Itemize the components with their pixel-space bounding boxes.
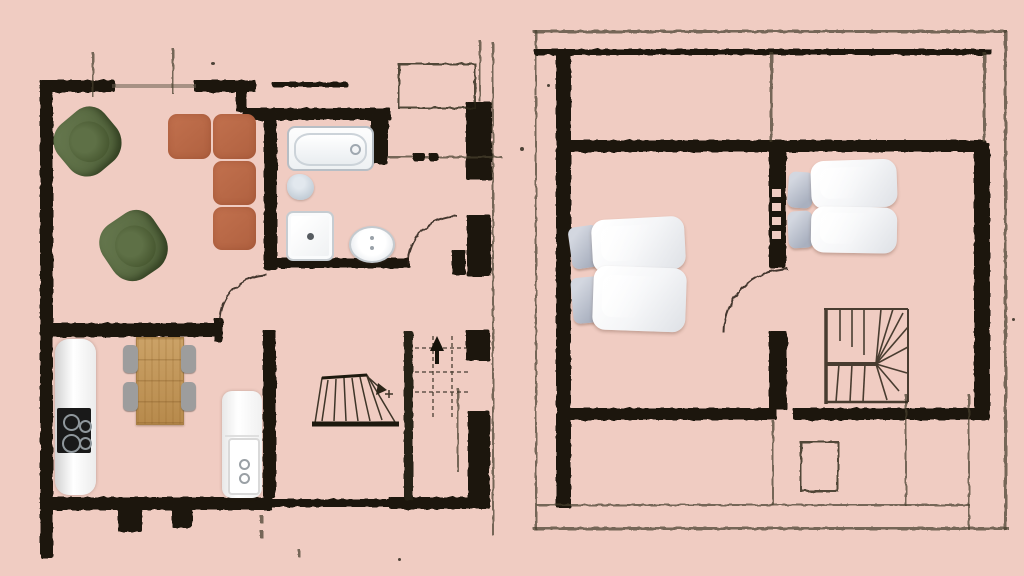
duvet-pillow-1 xyxy=(591,216,687,274)
floor-plan-canvas xyxy=(0,0,1024,576)
duvet-pillow-3 xyxy=(810,159,898,210)
outer-left-a xyxy=(535,30,537,96)
thin-v-a xyxy=(772,420,774,506)
thin-v-c xyxy=(968,394,970,530)
thin-h-bottom xyxy=(537,504,970,506)
duvet-pillow-4 xyxy=(811,206,898,253)
room-right-thin xyxy=(983,52,986,142)
outer-right xyxy=(1004,30,1007,530)
pillow-small-4 xyxy=(787,210,814,248)
hatch-outline xyxy=(800,441,839,492)
staircase-upper xyxy=(819,299,911,407)
wall-notch xyxy=(772,203,781,211)
right-wall xyxy=(974,143,990,419)
room-divider-thin xyxy=(770,52,773,142)
outer-top xyxy=(533,30,1007,33)
ink-speck xyxy=(1012,318,1015,321)
upper-floor-plan xyxy=(0,0,1024,576)
wall-notch xyxy=(772,217,781,225)
mid-wall-lower xyxy=(769,331,787,410)
outer-left-b xyxy=(535,96,537,530)
left-wall xyxy=(556,49,571,508)
wall-notch xyxy=(772,231,781,239)
thin-v-b xyxy=(905,394,907,506)
wall-notch xyxy=(772,189,781,197)
duvet-pillow-2 xyxy=(592,265,687,332)
bottom-wall-b xyxy=(793,408,989,420)
top-wall xyxy=(534,49,992,55)
bottom-wall-a xyxy=(566,408,777,420)
outer-bottom xyxy=(533,527,1009,530)
door-arc-bedroom xyxy=(723,268,788,333)
